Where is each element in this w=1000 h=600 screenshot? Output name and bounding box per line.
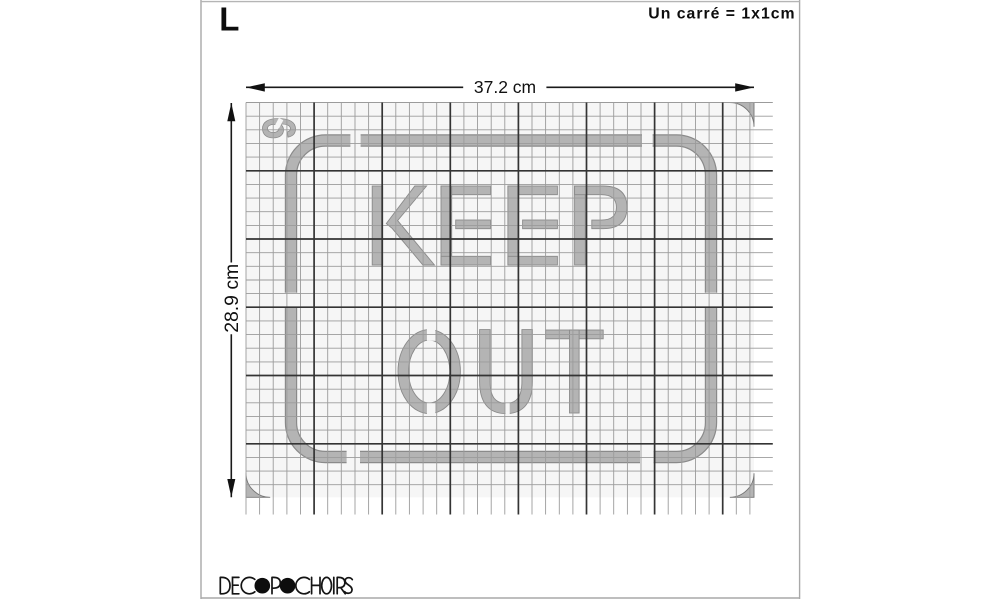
- svg-text:37.2 cm: 37.2 cm: [474, 77, 536, 97]
- svg-text:28.9 cm: 28.9 cm: [221, 264, 243, 333]
- svg-text:Un carré = 1x1cm: Un carré = 1x1cm: [648, 6, 795, 23]
- svg-text:L: L: [219, 1, 239, 38]
